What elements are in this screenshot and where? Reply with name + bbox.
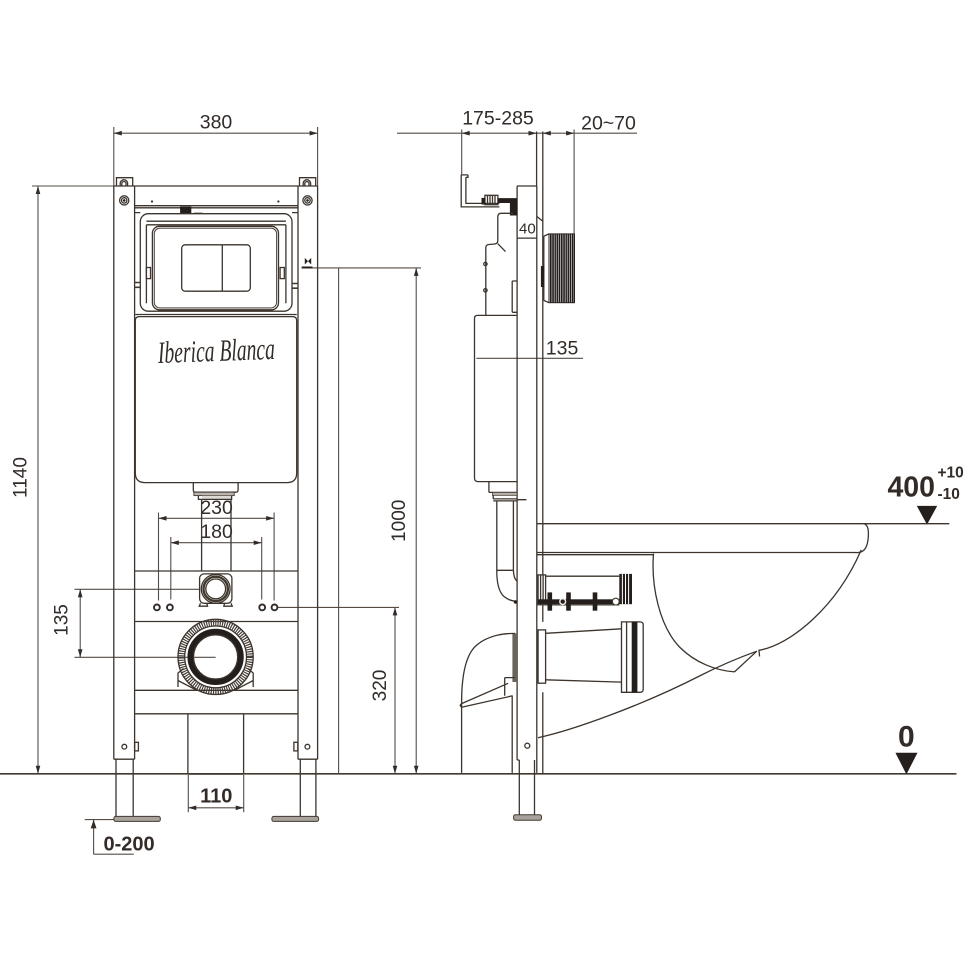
svg-text:320: 320 — [370, 670, 391, 702]
svg-text:180: 180 — [200, 521, 233, 543]
svg-text:110: 110 — [200, 785, 232, 807]
svg-text:1000: 1000 — [389, 500, 410, 542]
svg-text:+10: +10 — [938, 465, 964, 482]
svg-text:400: 400 — [887, 472, 935, 504]
svg-text:175-285: 175-285 — [462, 108, 534, 130]
svg-text:20~70: 20~70 — [581, 112, 636, 134]
svg-text:230: 230 — [200, 497, 233, 519]
svg-text:0: 0 — [898, 721, 915, 754]
svg-text:Iberica Blanca: Iberica Blanca — [157, 331, 276, 370]
svg-text:380: 380 — [200, 112, 233, 134]
svg-text:40: 40 — [519, 220, 536, 237]
svg-text:135: 135 — [52, 604, 73, 636]
svg-text:0-200: 0-200 — [104, 834, 155, 856]
svg-text:1140: 1140 — [11, 457, 32, 498]
svg-text:135: 135 — [546, 337, 579, 359]
svg-text:-10: -10 — [938, 486, 960, 503]
